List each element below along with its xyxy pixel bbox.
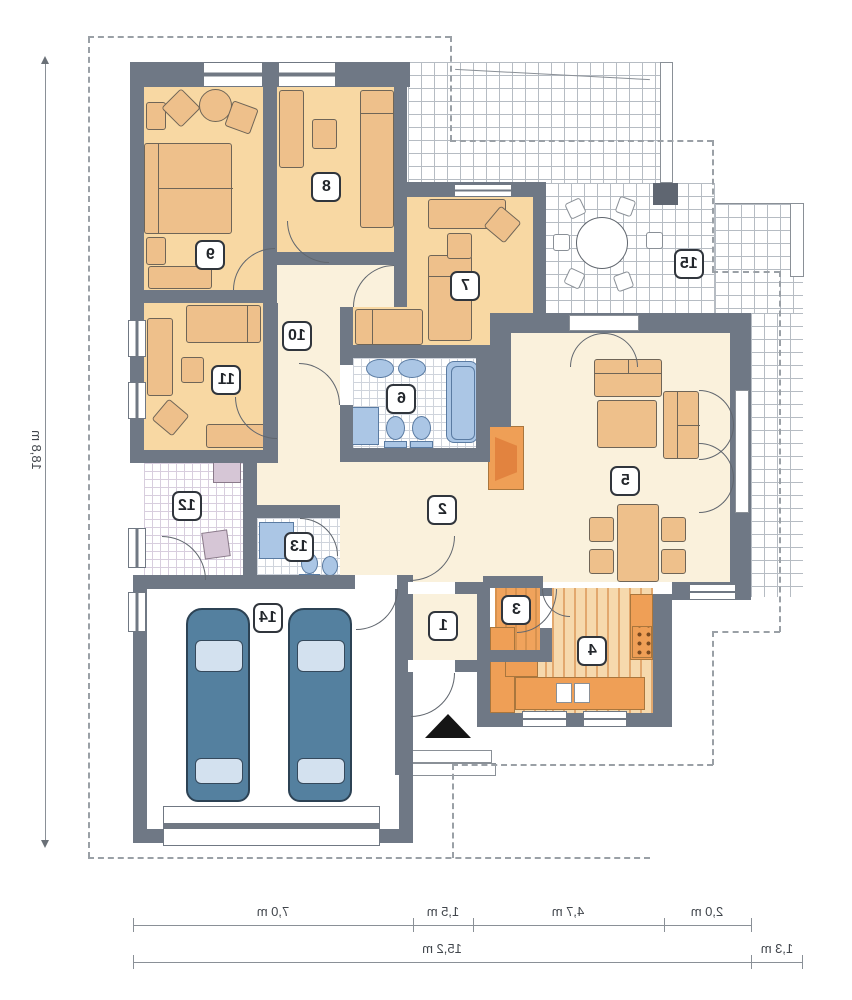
dimension-label: 1,3 m: [742, 941, 812, 956]
room-number: 9: [206, 246, 215, 264]
room-number: 11: [218, 371, 235, 389]
wall: [483, 576, 543, 588]
hob: [632, 626, 652, 658]
dimension-label: 1,5 m: [408, 904, 478, 919]
terrace-table: [576, 217, 628, 269]
wall: [483, 713, 672, 727]
dimension-line: [133, 962, 751, 963]
room-label-11: 11: [211, 365, 241, 395]
dimension-tick: [473, 918, 474, 932]
room-label-10: 10: [282, 321, 312, 351]
wall: [130, 290, 277, 303]
roof-outline-dashed: [712, 140, 714, 272]
room-label-4: 4: [577, 636, 607, 666]
bathtub: [446, 361, 478, 443]
bidet: [412, 416, 431, 440]
room-label-1: 1: [428, 611, 458, 641]
room-label-12: 12: [172, 491, 202, 521]
car: [288, 608, 352, 802]
wall: [277, 252, 407, 265]
wall: [394, 62, 407, 307]
room-number: 7: [461, 277, 470, 295]
garage-door: [163, 806, 380, 846]
room-label-15: 15: [674, 249, 704, 279]
terrace-door: [569, 315, 639, 331]
room-number: 3: [512, 601, 521, 619]
window: [203, 62, 263, 87]
entrance-arrow-icon: [425, 714, 471, 738]
porch-steps: [406, 750, 492, 763]
dimension-arrow: [41, 56, 49, 64]
sofa: [663, 391, 699, 459]
room-label-6: 6: [386, 384, 416, 414]
window: [128, 382, 146, 419]
sink: [322, 556, 338, 576]
dining-chair: [661, 517, 686, 542]
room-number: 5: [621, 472, 630, 490]
terrace-tiles: [751, 313, 803, 597]
kitchen-sink: [556, 683, 572, 703]
toilet: [386, 416, 405, 440]
dimension-label-total: 15,2 m: [407, 941, 477, 956]
roof-outline-dashed: [88, 36, 451, 38]
room-label-5: 5: [610, 466, 640, 496]
room-label-9: 9: [195, 240, 225, 270]
roof-outline-dashed: [712, 631, 714, 765]
room-label-13: 13: [284, 532, 314, 562]
sink: [398, 359, 426, 378]
dimension-line: [133, 925, 751, 926]
wardrobe: [279, 90, 304, 168]
fireplace: [488, 426, 524, 490]
dimension-tick: [133, 955, 134, 969]
terrace-post: [660, 62, 673, 183]
roof-outline-dashed: [779, 271, 781, 632]
wall: [533, 182, 546, 313]
wall: [653, 594, 672, 727]
room-number: 12: [178, 497, 196, 515]
room-number: 8: [322, 178, 331, 196]
wall: [340, 448, 490, 462]
window: [278, 62, 336, 87]
window: [522, 711, 567, 727]
room-number: 13: [290, 538, 308, 556]
dining-chair: [589, 549, 614, 574]
roof-outline-dashed: [450, 140, 713, 142]
dimension-tick: [802, 955, 803, 969]
door-opening: [408, 582, 455, 594]
dimension-label: 4,7 m: [533, 904, 603, 919]
dining-chair: [589, 517, 614, 542]
roof-outline-dashed: [88, 857, 650, 859]
car: [186, 608, 250, 802]
room-number: 10: [288, 327, 306, 345]
terrace-post: [790, 203, 804, 277]
bed: [360, 90, 394, 228]
terrace-door: [735, 390, 749, 513]
sink: [366, 359, 394, 378]
bed: [186, 305, 261, 343]
window: [583, 711, 627, 727]
roof-outline-dashed: [712, 271, 780, 273]
room-label-8: 8: [311, 172, 341, 202]
window: [128, 320, 146, 357]
room-number: 6: [397, 390, 406, 408]
room-number: 4: [588, 642, 597, 660]
room-number: 2: [438, 501, 447, 519]
roof-outline-dashed: [450, 36, 452, 141]
terrace-chair: [646, 232, 663, 249]
dimension-line: [751, 962, 803, 963]
room-label-7: 7: [450, 271, 480, 301]
dimension-tick: [751, 955, 752, 969]
wall: [243, 450, 257, 582]
wardrobe: [147, 318, 173, 396]
dimension-tick: [133, 918, 134, 932]
roof-outline-dashed: [712, 631, 780, 633]
wall: [476, 345, 490, 462]
wall: [257, 505, 340, 518]
wall: [340, 345, 490, 358]
dimension-arrow: [41, 840, 49, 848]
window: [128, 592, 146, 632]
kitchen-sink: [574, 683, 590, 703]
terrace-chair: [553, 234, 570, 251]
door-opening: [408, 660, 455, 672]
bed: [144, 143, 232, 234]
laundry-basket: [201, 529, 231, 559]
terrace-tiles: [408, 62, 673, 183]
roof-outline-dashed: [452, 764, 713, 766]
wall: [483, 650, 552, 662]
living-5-floor: [490, 490, 511, 582]
nightstand: [146, 237, 166, 265]
coffee-table: [597, 400, 657, 448]
window: [689, 584, 736, 600]
roof-outline-dashed: [88, 37, 90, 858]
dimension-tick: [413, 918, 414, 932]
door-opening: [355, 575, 397, 589]
wall: [490, 313, 511, 427]
dining-table: [617, 504, 659, 582]
dimension-label-vertical: 18,8 m: [28, 412, 44, 488]
dimension-label: 2,0 m: [672, 904, 742, 919]
desk: [181, 357, 204, 383]
dimension-line: [45, 62, 46, 843]
chair: [447, 233, 472, 259]
roof-outline-dashed: [452, 764, 454, 858]
room-label-3: 3: [501, 595, 531, 625]
floor-plan: 1 2 3 4 5 6 7 8 9 10 11 12 13 14 15 18,8…: [0, 0, 852, 1000]
dimension-tick: [751, 918, 752, 932]
terrace-pillar: [653, 183, 678, 205]
window: [128, 528, 146, 568]
room-label-2: 2: [427, 495, 457, 525]
toilet-tank: [384, 441, 407, 448]
room-label-14: 14: [253, 603, 283, 633]
room-number: 1: [439, 617, 448, 635]
chair: [312, 119, 337, 149]
hall-floor: [257, 462, 340, 505]
room-number: 14: [259, 609, 277, 627]
dimension-tick: [664, 918, 665, 932]
dining-chair: [661, 549, 686, 574]
dimension-label: 7,0 m: [238, 904, 308, 919]
window: [454, 184, 512, 197]
bidet-tank: [410, 441, 433, 448]
bed: [355, 309, 423, 345]
room-number: 15: [680, 255, 698, 273]
